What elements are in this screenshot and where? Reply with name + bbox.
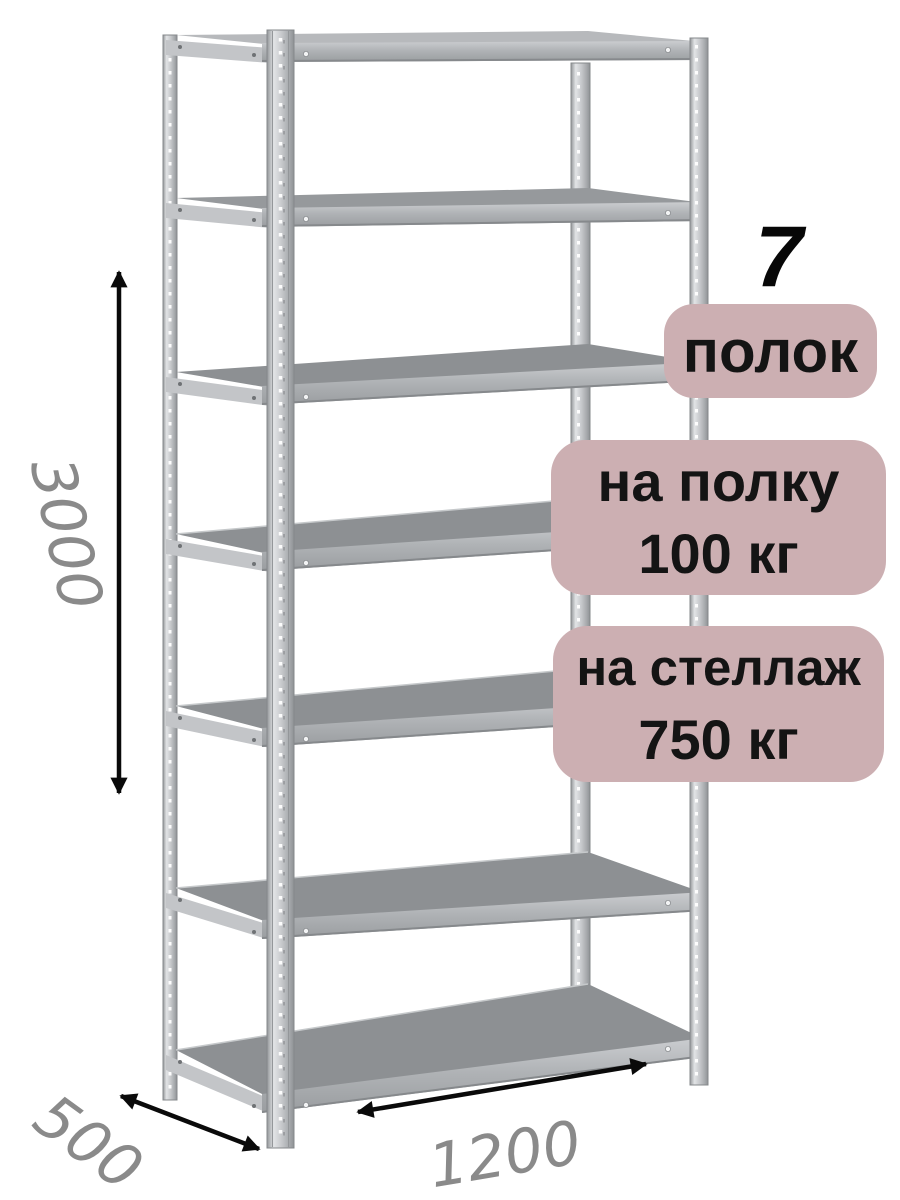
shelving-rack-drawing xyxy=(0,0,900,1200)
rack-post-back-left xyxy=(163,35,177,1100)
shelf-load-badge: на полку 100 кг xyxy=(551,440,886,595)
rack-post-front-left xyxy=(267,30,294,1148)
shelf-count-label: полок xyxy=(683,317,858,386)
shelf-1 xyxy=(166,31,704,63)
shelf-7 xyxy=(166,984,704,1114)
rack-load-line2: 750 кг xyxy=(638,704,798,776)
shelf-count-number: 7 xyxy=(731,212,827,302)
shelf-load-line1: на полку xyxy=(598,446,840,518)
shelf-count-badge: полок xyxy=(664,304,877,398)
shelf-2 xyxy=(166,188,704,228)
shelf-load-line2: 100 кг xyxy=(638,518,798,590)
rack-load-line1: на стеллаж xyxy=(576,632,860,704)
rack-load-badge: на стеллаж 750 кг xyxy=(553,626,884,782)
shelf-3 xyxy=(166,344,704,406)
shelf-6 xyxy=(166,852,704,940)
product-illustration: 7 полок на полку 100 кг на стеллаж 750 к… xyxy=(0,0,900,1200)
